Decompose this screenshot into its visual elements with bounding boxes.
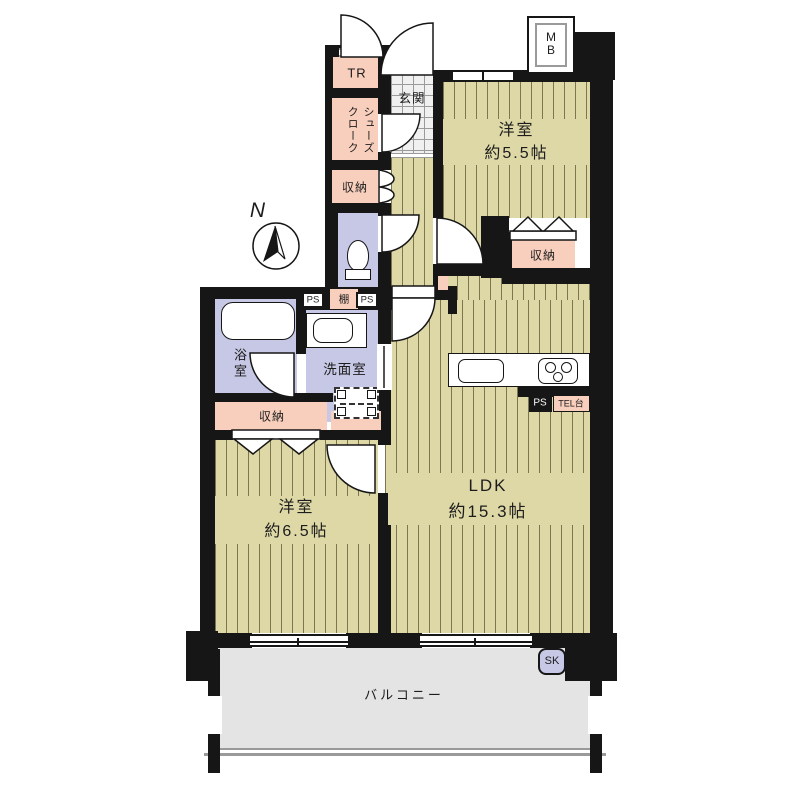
floor-plan: TR シューズ クローク 収納 玄関 洋室 約5.5帖 収納 MB N 棚 PS… xyxy=(0,0,800,800)
entrance-label: 玄関 xyxy=(398,88,425,107)
bedroom1-label: 洋室 約5.5帖 xyxy=(443,119,590,165)
bedroom2-size: 約6.5帖 xyxy=(215,520,378,544)
shoes-closet-label-line2: クローク xyxy=(343,101,359,159)
bifold-door-bedroom1-closet xyxy=(544,217,573,231)
door-arc-ldk xyxy=(392,298,435,341)
bifold-door-hall-storage xyxy=(379,170,394,203)
bifold-bar-bedroom2-closet xyxy=(232,430,320,439)
shelf-label: 棚 xyxy=(339,292,350,307)
door-symbols-layer xyxy=(0,0,800,800)
shoes-closet-label: シューズ クローク xyxy=(337,101,375,159)
washroom-label: 洗面室 xyxy=(323,358,367,378)
ldk-name: LDK xyxy=(388,473,588,499)
door-arc-bedroom2 xyxy=(327,445,375,493)
bedroom2-name: 洋室 xyxy=(215,496,378,520)
bath-label: 浴室 xyxy=(230,348,249,380)
bedroom1-name: 洋室 xyxy=(443,119,590,142)
bifold-bar-bedroom1-closet xyxy=(510,231,576,240)
door-arc-entrance xyxy=(381,23,433,75)
bath-side-storage-label: 収納 xyxy=(259,408,285,425)
slop-sink-label: SK xyxy=(545,655,560,667)
bifold-door-bedroom2-closet xyxy=(280,439,318,454)
bifold-door-bedroom2-closet xyxy=(234,439,272,454)
tel-stand-label: TEL台 xyxy=(558,397,584,410)
hall-storage-label: 収納 xyxy=(342,179,368,196)
bedroom1-closet-label: 収納 xyxy=(530,247,556,264)
door-leaf-ldk xyxy=(392,286,435,298)
balcony-label: バルコニー xyxy=(364,685,444,704)
door-arc-bedroom1 xyxy=(437,218,483,264)
bedroom2-label: 洋室 約6.5帖 xyxy=(215,496,378,544)
door-arc-bath xyxy=(250,353,294,397)
ldk-size: 約15.3帖 xyxy=(388,499,588,525)
door-arc-shoes-closet xyxy=(382,114,420,152)
door-arc-toilet xyxy=(382,215,419,252)
compass-north-label: N xyxy=(250,199,266,223)
trunk-label: TR xyxy=(347,66,366,81)
ps-label-right: PS xyxy=(361,295,374,306)
bifold-door-bedroom1-closet xyxy=(513,217,542,231)
ldk-label: LDK 約15.3帖 xyxy=(388,473,588,525)
bedroom1-size: 約5.5帖 xyxy=(443,142,590,165)
meter-box-label: MB xyxy=(544,31,558,57)
ps-kitchen-label: PS xyxy=(533,398,546,409)
door-arc-trunk xyxy=(341,15,383,57)
ps-label-left: PS xyxy=(307,295,320,306)
shoes-closet-label-line1: シューズ xyxy=(359,101,375,159)
